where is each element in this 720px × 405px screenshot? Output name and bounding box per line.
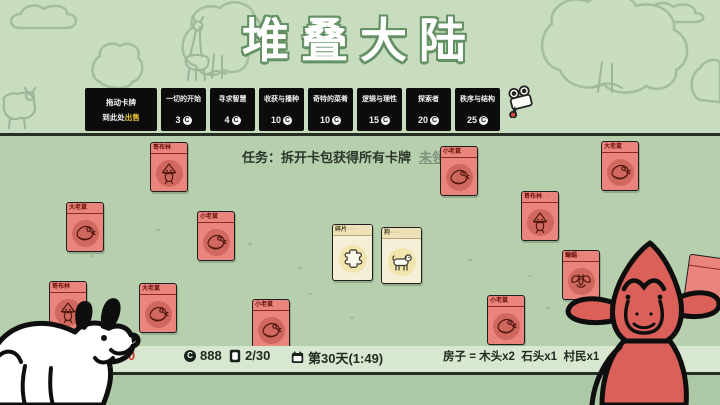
pack-price: 4C bbox=[224, 115, 240, 125]
pack-price: 20C bbox=[418, 115, 439, 125]
card-title: 小老鼠 bbox=[441, 147, 477, 158]
card-pack-button[interactable]: 收获与播种 10C bbox=[259, 88, 304, 131]
card-art bbox=[198, 223, 234, 261]
calendar-icon bbox=[291, 351, 304, 364]
rat-icon bbox=[205, 231, 227, 253]
goblin-icon bbox=[57, 301, 79, 323]
pack-name: 奇特的菜肴 bbox=[313, 94, 348, 104]
pack-name: 逻辑与理性 bbox=[362, 94, 397, 104]
card-title: 狗···· bbox=[382, 228, 421, 239]
board-card[interactable]: 小老鼠 bbox=[440, 146, 478, 196]
coin-icon: C bbox=[184, 350, 196, 362]
below-bar-background bbox=[0, 375, 720, 405]
card-title: 哥布林 bbox=[50, 282, 86, 293]
board-card[interactable]: 小老鼠 bbox=[252, 299, 290, 349]
coin-icon: C bbox=[479, 116, 488, 125]
coin-icon: C bbox=[430, 116, 439, 125]
board-card[interactable]: 哥布林··· bbox=[521, 191, 559, 241]
board-card[interactable]: 小老鼠 bbox=[197, 211, 235, 261]
card-art bbox=[140, 295, 176, 333]
goblin-icon bbox=[529, 211, 551, 233]
card-title: 碎片··· bbox=[333, 225, 372, 236]
card-title: 大老鼠 bbox=[602, 142, 638, 153]
card-title: 哥布林 bbox=[151, 143, 187, 154]
pack-name: 秩序与结构 bbox=[460, 94, 495, 104]
day-timer: 第30天(1:49) bbox=[291, 348, 383, 367]
rat-icon bbox=[495, 315, 517, 337]
card-art bbox=[602, 153, 638, 191]
coin-icon: C bbox=[381, 116, 390, 125]
card-art bbox=[563, 262, 599, 300]
sell-highlight: 出售 bbox=[125, 113, 140, 122]
card-title: 蝙蝠·· bbox=[563, 251, 599, 262]
card-health-pips: ·· bbox=[578, 253, 583, 259]
card-health-pips: ···· bbox=[391, 230, 402, 236]
card-title: 大老鼠 bbox=[67, 203, 103, 214]
board-card[interactable]: 哥布林 bbox=[150, 142, 188, 192]
card-health-pips: ··· bbox=[543, 194, 551, 200]
card-title: 小老鼠 bbox=[198, 212, 234, 223]
food-value: 3/0 bbox=[117, 348, 135, 363]
pack-name: 一切的开始 bbox=[166, 94, 201, 104]
board-top-border bbox=[0, 133, 720, 136]
dog-icon bbox=[391, 251, 413, 273]
card-art bbox=[441, 158, 477, 196]
card-pack-button[interactable]: 寻求智慧 4C bbox=[210, 88, 255, 131]
video-camera-icon[interactable] bbox=[505, 84, 537, 118]
coin-icon: C bbox=[232, 116, 241, 125]
sell-line1: 拖动卡牌 bbox=[106, 97, 136, 108]
board-card[interactable]: 蝙蝠·· bbox=[562, 250, 600, 300]
pack-price: 25C bbox=[467, 115, 488, 125]
coin-icon: C bbox=[183, 116, 192, 125]
card-count-value: 2/30 bbox=[245, 348, 270, 363]
card-art bbox=[522, 203, 558, 241]
card-title: 小老鼠 bbox=[488, 296, 524, 307]
card-art bbox=[333, 236, 372, 281]
card-pack-button[interactable]: 奇特的菜肴 10C bbox=[308, 88, 353, 131]
coin-icon: C bbox=[283, 116, 292, 125]
pack-name: 探索者 bbox=[418, 94, 439, 104]
card-pack-button[interactable]: 逻辑与理性 15C bbox=[357, 88, 402, 131]
card-pack-button[interactable]: 秩序与结构 25C bbox=[455, 88, 500, 131]
card-health-pips: ··· bbox=[348, 227, 356, 233]
cardopedia-book-icon bbox=[636, 350, 651, 368]
food-counter: 3/0 bbox=[101, 348, 135, 363]
pack-name: 收获与播种 bbox=[264, 94, 299, 104]
rat-icon bbox=[609, 161, 631, 183]
food-icon bbox=[101, 349, 113, 362]
card-pack-shop-row: 拖动卡牌 到此处出售 一切的开始 3C 寻求智慧 4C 收获与播种 10C 奇特… bbox=[85, 88, 500, 131]
pack-price: 10C bbox=[320, 115, 341, 125]
rat-icon bbox=[74, 222, 96, 244]
rat-icon bbox=[147, 303, 169, 325]
board-card[interactable]: 碎片··· bbox=[332, 224, 373, 281]
game-title: 堆叠大陆 bbox=[0, 2, 720, 71]
coin-icon: C bbox=[332, 116, 341, 125]
day-value: 第30天(1:49) bbox=[308, 348, 383, 367]
card-count: 2/30 bbox=[229, 348, 270, 363]
rat-icon bbox=[260, 319, 282, 341]
quest-banner: 任务：拆开卡包获得所有卡牌未领取 bbox=[160, 147, 540, 166]
card-title: 大老鼠 bbox=[140, 284, 176, 295]
goblin-icon bbox=[158, 162, 180, 184]
card-title bbox=[689, 255, 720, 271]
board-card[interactable]: 大老鼠 bbox=[66, 202, 104, 252]
puzzle-piece-icon bbox=[342, 248, 364, 270]
bat-icon bbox=[570, 270, 592, 292]
card-art bbox=[67, 214, 103, 252]
pack-price: 10C bbox=[271, 115, 292, 125]
card-title: 小老鼠 bbox=[253, 300, 289, 311]
card-pack-button[interactable]: 探索者 20C bbox=[406, 88, 451, 131]
card-art bbox=[151, 154, 187, 192]
rat-icon bbox=[448, 166, 470, 188]
pack-list: 一切的开始 3C 寻求智慧 4C 收获与播种 10C 奇特的菜肴 10C bbox=[161, 88, 500, 131]
card-art bbox=[488, 307, 524, 345]
sell-line2: 到此处出售 bbox=[102, 112, 140, 123]
board-card[interactable]: 哥布林 bbox=[49, 281, 87, 331]
status-bar-bottom-border bbox=[0, 372, 720, 375]
board-card[interactable] bbox=[683, 254, 720, 309]
board-card[interactable]: 狗···· bbox=[381, 227, 422, 284]
card-stack-icon bbox=[229, 349, 241, 363]
card-art bbox=[253, 311, 289, 349]
coin-counter: C 888 bbox=[184, 348, 222, 363]
coin-value: 888 bbox=[200, 348, 222, 363]
recipe-hint: 房子 = 木头x2 石头x1 村民x1 bbox=[443, 348, 599, 364]
quest-label: 任务：拆开卡包获得所有卡牌 bbox=[242, 150, 411, 165]
sell-drop-zone[interactable]: 拖动卡牌 到此处出售 bbox=[85, 88, 157, 131]
pack-price: 3C bbox=[175, 115, 191, 125]
board-card[interactable]: 大老鼠 bbox=[139, 283, 177, 333]
pack-price: 15C bbox=[369, 115, 390, 125]
stacklands-game-screen: { "title": "堆叠大陆", "top_bar": { "sell_bo… bbox=[0, 0, 720, 405]
card-art bbox=[382, 239, 421, 284]
cardopedia-button[interactable] bbox=[629, 345, 657, 373]
card-pack-button[interactable]: 一切的开始 3C bbox=[161, 88, 206, 131]
board-card[interactable]: 小老鼠 bbox=[487, 295, 525, 345]
card-art bbox=[50, 293, 86, 331]
board-card[interactable]: 大老鼠 bbox=[601, 141, 639, 191]
pack-name: 寻求智慧 bbox=[219, 94, 247, 104]
card-health-pips bbox=[692, 257, 693, 263]
card-title: 哥布林··· bbox=[522, 192, 558, 203]
